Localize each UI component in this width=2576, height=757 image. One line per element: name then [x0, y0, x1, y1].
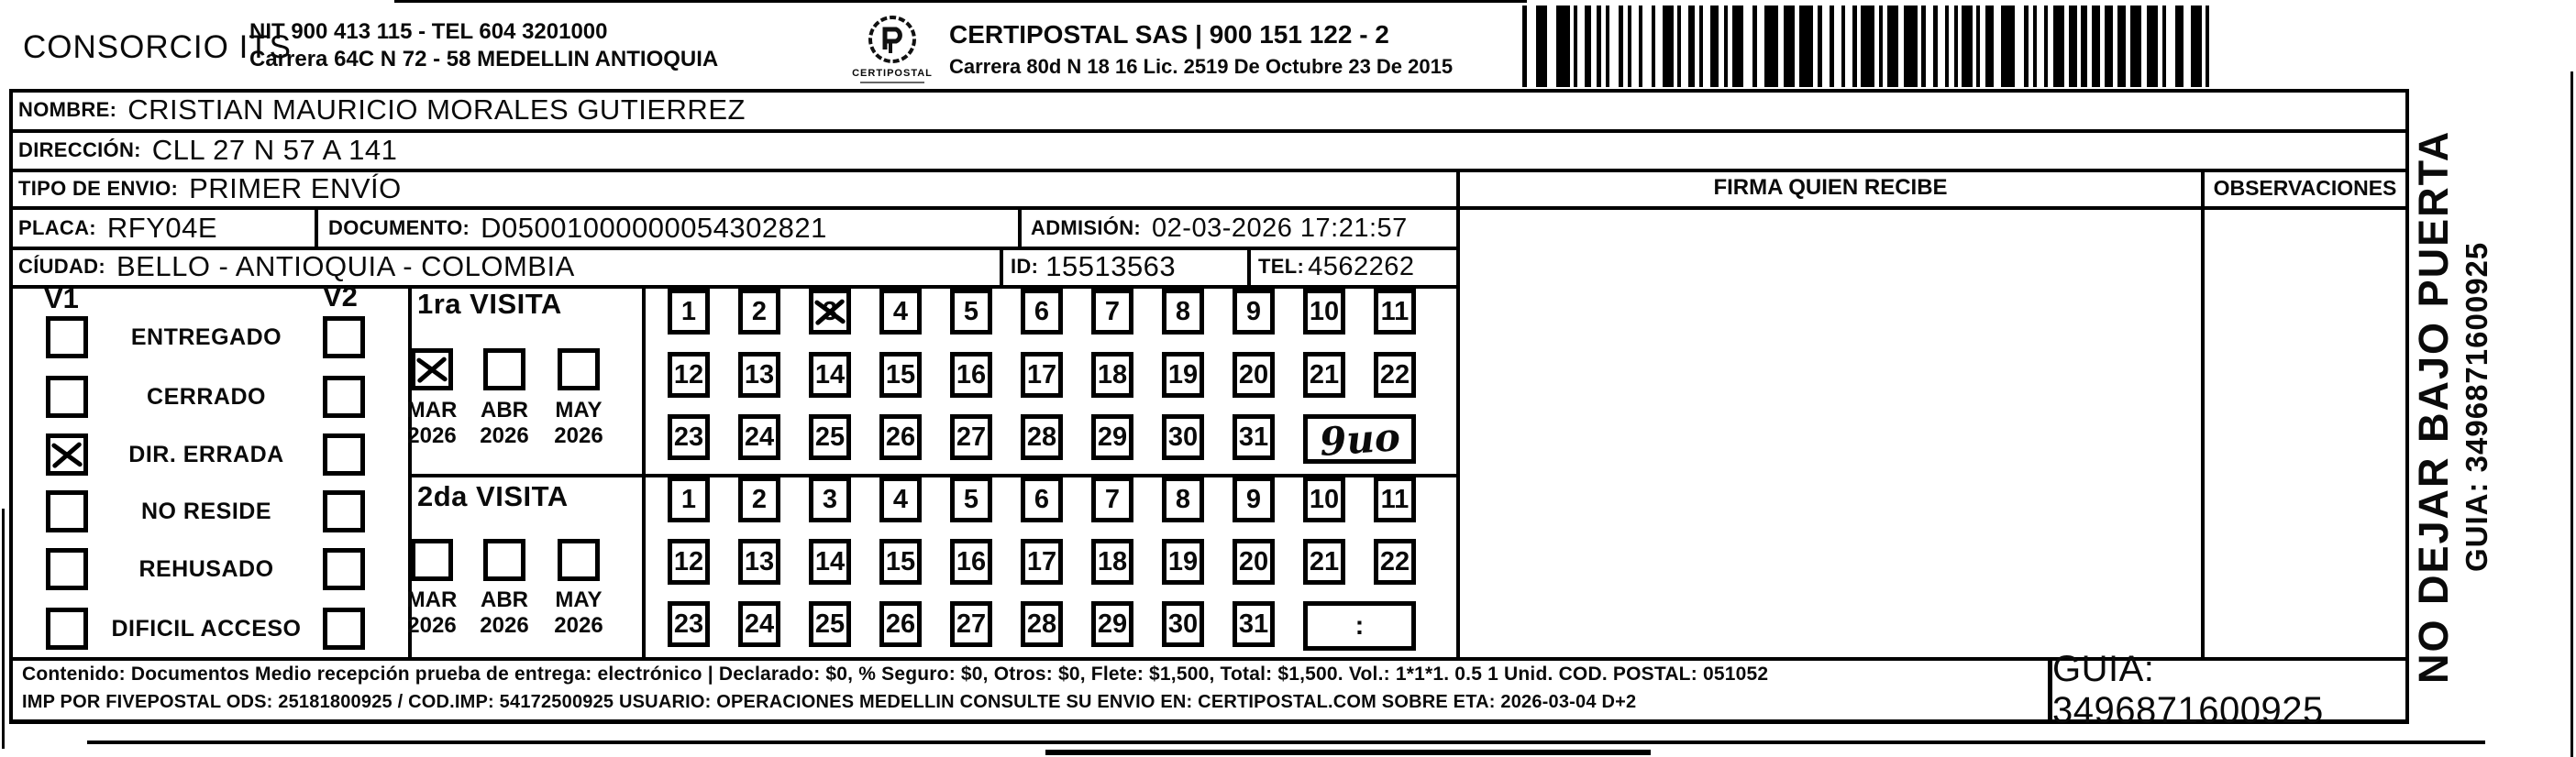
nombre-row: NOMBRE: CRISTIAN MAURICIO MORALES GUTIER…	[18, 92, 746, 128]
first-visit-time-box[interactable]: 9uo	[1303, 414, 1416, 464]
second-visit-day-28[interactable]: 28	[1021, 601, 1063, 647]
documento-label: DOCUMENTO:	[328, 216, 470, 240]
first-visit-day-19[interactable]: 19	[1162, 352, 1204, 398]
second-visit-month-label-mar: MAR	[393, 587, 470, 613]
first-visit-month-label-mar: MAR	[393, 398, 470, 423]
tel-field: TEL: 4562262	[1258, 248, 1414, 285]
scan-artifact-right-line	[2570, 71, 2573, 757]
logo-tagline-rule	[860, 82, 924, 83]
id-field: ID: 15513563	[1011, 248, 1176, 285]
firma-header: FIRMA QUIEN RECIBE	[1460, 172, 2201, 203]
id-value: 15513563	[1045, 250, 1176, 283]
second-visit-month-checkbox-abr[interactable]	[483, 539, 525, 581]
ciudad-id-divider	[1000, 247, 1003, 289]
guia-vertical: GUIA: 3496871600925	[2458, 87, 2496, 726]
status-label-entregado: ENTREGADO	[92, 316, 321, 359]
second-visit-day-31[interactable]: 31	[1233, 601, 1275, 647]
tel-value: 4562262	[1308, 252, 1414, 282]
first-visit-month-year-abr: 2026	[466, 423, 543, 449]
admision-value: 02-03-2026 17:21:57	[1152, 214, 1408, 244]
first-visit-day-24[interactable]: 24	[738, 414, 780, 460]
admision-label: ADMISIÓN:	[1031, 216, 1141, 240]
scan-artifact-bottom-thick	[1045, 750, 1651, 755]
logo-wordmark: CERTIPOSTAL	[851, 68, 934, 79]
barcode	[1522, 5, 2228, 87]
courier-address: Carrera 80d N 18 16 Lic. 2519 De Octubre…	[949, 55, 1453, 79]
v2-column-label: V2	[323, 280, 358, 313]
second-visit-day-6[interactable]: 6	[1021, 477, 1063, 522]
v1-checkbox-cerrado[interactable]	[46, 376, 88, 418]
first-visit-day-28[interactable]: 28	[1021, 414, 1063, 460]
second-visit-day-16[interactable]: 16	[950, 539, 992, 585]
second-visit-day-7[interactable]: 7	[1091, 477, 1133, 522]
direccion-value: CLL 27 N 57 A 141	[152, 134, 398, 167]
sender-nit-tel: NIT 900 413 115 - TEL 604 3201000	[249, 18, 718, 46]
v2-checkbox-dificil-acceso[interactable]	[323, 608, 365, 650]
observaciones-area[interactable]	[2205, 210, 2405, 657]
tipo-envio-label: TIPO DE ENVIO:	[18, 177, 178, 201]
first-visit-month-year-mar: 2026	[393, 423, 470, 449]
second-visit-day-8[interactable]: 8	[1162, 477, 1204, 522]
certipostal-logo: CERTIPOSTAL	[851, 13, 934, 83]
placa-value: RFY04E	[107, 212, 217, 245]
placa-field: PLACA: RFY04E	[18, 210, 217, 247]
footer-imp-line: IMP POR FIVEPOSTAL ODS: 25181800925 / CO…	[22, 692, 1636, 713]
second-visit-day-23[interactable]: 23	[668, 601, 710, 647]
v2-checkbox-no-reside[interactable]	[323, 490, 365, 532]
tel-label: TEL:	[1258, 255, 1304, 279]
scan-artifact-left-line	[2, 509, 5, 749]
second-visit-day-9[interactable]: 9	[1233, 477, 1275, 522]
second-visit-day-22[interactable]: 22	[1374, 539, 1416, 585]
first-visit-day-23[interactable]: 23	[668, 414, 710, 460]
first-visit-day-2[interactable]: 2	[738, 289, 780, 335]
first-visit-handwritten-time: 9uo	[1318, 413, 1401, 464]
second-visit-month-checkbox-mar[interactable]	[411, 539, 453, 581]
ciudad-label: CÍUDAD:	[18, 255, 105, 279]
nombre-label: NOMBRE:	[18, 98, 116, 122]
status-label-dificil-acceso: DIFICIL ACCESO	[92, 608, 321, 651]
v1-checkbox-rehusado[interactable]	[46, 548, 88, 590]
second-visit-day-10[interactable]: 10	[1303, 477, 1345, 522]
second-visit-day-15[interactable]: 15	[879, 539, 922, 585]
direccion-label: DIRECCIÓN:	[18, 138, 141, 162]
second-visit-month-year-abr: 2026	[466, 613, 543, 639]
first-visit-title: 1ra VISITA	[417, 288, 562, 321]
first-visit-day-31[interactable]: 31	[1233, 414, 1275, 460]
first-visit-day-20[interactable]: 20	[1233, 352, 1275, 398]
scanned-delivery-form: CONSORCIO ITS NIT 900 413 115 - TEL 604 …	[0, 0, 2576, 757]
first-visit-month-checkbox-abr[interactable]	[483, 348, 525, 390]
courier-info: CERTIPOSTAL SAS | 900 151 122 - 2 Carrer…	[949, 20, 1453, 79]
first-visit-day-8[interactable]: 8	[1162, 289, 1204, 335]
direccion-row: DIRECCIÓN: CLL 27 N 57 A 141	[18, 132, 397, 169]
no-dejar-warning: NO DEJAR BAJO PUERTA	[2408, 87, 2460, 726]
guia-box: GUIA: 3496871600925	[2052, 659, 2405, 721]
second-visit-day-13[interactable]: 13	[738, 539, 780, 585]
first-visit-day-14[interactable]: 14	[809, 352, 851, 398]
visit-divider	[408, 474, 1460, 477]
second-visit-month-label-abr: ABR	[466, 587, 543, 613]
sender-address: Carrera 64C N 72 - 58 MEDELLIN ANTIOQUIA	[249, 46, 718, 73]
status-label-cerrado: CERRADO	[92, 376, 321, 419]
documento-value: D05001000000054302821	[481, 212, 827, 245]
first-visit-day-22[interactable]: 22	[1374, 352, 1416, 398]
first-visit-day-21[interactable]: 21	[1303, 352, 1345, 398]
v2-checkbox-cerrado[interactable]	[323, 376, 365, 418]
nombre-value: CRISTIAN MAURICIO MORALES GUTIERREZ	[127, 93, 746, 126]
firma-area[interactable]	[1460, 210, 2201, 657]
second-visit-time-box[interactable]: :	[1303, 601, 1416, 651]
second-visit-title: 2da VISITA	[417, 480, 569, 513]
doc-admision-divider	[1018, 206, 1022, 250]
id-label: ID:	[1011, 255, 1038, 279]
second-visit-day-12[interactable]: 12	[668, 539, 710, 585]
v1-checkbox-dir-errada[interactable]	[46, 433, 88, 476]
v2-checkbox-rehusado[interactable]	[323, 548, 365, 590]
second-visit-month-year-mar: 2026	[393, 613, 470, 639]
first-visit-month-checkbox-mar[interactable]	[411, 348, 453, 390]
second-visit-month-checkbox-may[interactable]	[558, 539, 600, 581]
second-visit-day-11[interactable]: 11	[1374, 477, 1416, 522]
second-visit-day-20[interactable]: 20	[1233, 539, 1275, 585]
placa-label: PLACA:	[18, 216, 96, 240]
second-visit-day-27[interactable]: 27	[950, 601, 992, 647]
first-visit-day-9[interactable]: 9	[1233, 289, 1275, 335]
status-label-dir-errada: DIR. ERRADA	[92, 433, 321, 477]
first-visit-day-6[interactable]: 6	[1021, 289, 1063, 335]
second-visit-day-3[interactable]: 3	[809, 477, 851, 522]
second-visit-day-21[interactable]: 21	[1303, 539, 1345, 585]
first-visit-day-10[interactable]: 10	[1303, 289, 1345, 335]
first-visit-month-label-abr: ABR	[466, 398, 543, 423]
second-visit-day-19[interactable]: 19	[1162, 539, 1204, 585]
second-visit-day-5[interactable]: 5	[950, 477, 992, 522]
tipo-envio-row: TIPO DE ENVIO: PRIMER ENVÍO	[18, 171, 402, 206]
second-visit-day-4[interactable]: 4	[879, 477, 922, 522]
first-visit-day-26[interactable]: 26	[879, 414, 922, 460]
second-visit-day-25[interactable]: 25	[809, 601, 851, 647]
status-label-rehusado: REHUSADO	[92, 548, 321, 591]
first-visit-month-label-may: MAY	[540, 398, 617, 423]
first-visit-day-30[interactable]: 30	[1162, 414, 1204, 460]
ciudad-value: BELLO - ANTIOQUIA - COLOMBIA	[116, 250, 575, 283]
second-visit-day-17[interactable]: 17	[1021, 539, 1063, 585]
first-visit-day-5[interactable]: 5	[950, 289, 992, 335]
second-visit-day-29[interactable]: 29	[1091, 601, 1133, 647]
second-visit-day-18[interactable]: 18	[1091, 539, 1133, 585]
tipo-envio-value: PRIMER ENVÍO	[189, 172, 402, 205]
v2-checkbox-dir-errada[interactable]	[323, 433, 365, 476]
v1-checkbox-no-reside[interactable]	[46, 490, 88, 532]
admision-field: ADMISIÓN: 02-03-2026 17:21:57	[1031, 210, 1408, 247]
first-visit-day-25[interactable]: 25	[809, 414, 851, 460]
certipostal-logo-icon	[866, 13, 919, 66]
id-tel-divider	[1247, 247, 1251, 289]
second-visit-day-1[interactable]: 1	[668, 477, 710, 522]
v2-checkbox-entregado[interactable]	[323, 316, 365, 358]
scan-artifact-top-line	[394, 0, 1527, 3]
first-visit-month-checkbox-may[interactable]	[558, 348, 600, 390]
first-visit-day-4[interactable]: 4	[879, 289, 922, 335]
visit-grid-divider	[642, 285, 646, 661]
first-visit-day-16[interactable]: 16	[950, 352, 992, 398]
first-visit-day-13[interactable]: 13	[738, 352, 780, 398]
footer-contenido-line: Contenido: Documentos Medio recepción pr…	[22, 664, 1768, 686]
first-visit-day-29[interactable]: 29	[1091, 414, 1133, 460]
second-visit-month-label-may: MAY	[540, 587, 617, 613]
documento-field: DOCUMENTO: D05001000000054302821	[328, 210, 827, 247]
first-visit-day-11[interactable]: 11	[1374, 289, 1416, 335]
first-visit-day-12[interactable]: 12	[668, 352, 710, 398]
observaciones-header: OBSERVACIONES	[2205, 172, 2405, 203]
second-visit-day-2[interactable]: 2	[738, 477, 780, 522]
first-visit-day-17[interactable]: 17	[1021, 352, 1063, 398]
first-visit-day-7[interactable]: 7	[1091, 289, 1133, 335]
second-visit-month-year-may: 2026	[540, 613, 617, 639]
first-visit-day-3[interactable]: 3	[809, 289, 851, 335]
first-visit-day-15[interactable]: 15	[879, 352, 922, 398]
placa-doc-divider	[315, 206, 318, 250]
v1-checkbox-dificil-acceso[interactable]	[46, 608, 88, 650]
form-border-left	[9, 89, 13, 724]
v1-column-label: V1	[44, 282, 79, 315]
first-visit-day-18[interactable]: 18	[1091, 352, 1133, 398]
first-visit-day-1[interactable]: 1	[668, 289, 710, 335]
second-visit-day-30[interactable]: 30	[1162, 601, 1204, 647]
v1-checkbox-entregado[interactable]	[46, 316, 88, 358]
second-visit-day-24[interactable]: 24	[738, 601, 780, 647]
ciudad-field: CÍUDAD: BELLO - ANTIOQUIA - COLOMBIA	[18, 248, 575, 285]
first-visit-month-year-may: 2026	[540, 423, 617, 449]
first-visit-day-27[interactable]: 27	[950, 414, 992, 460]
sender-info: NIT 900 413 115 - TEL 604 3201000 Carrer…	[249, 18, 718, 73]
second-visit-day-14[interactable]: 14	[809, 539, 851, 585]
second-visit-day-26[interactable]: 26	[879, 601, 922, 647]
status-label-no-reside: NO RESIDE	[92, 490, 321, 533]
courier-name: CERTIPOSTAL SAS | 900 151 122 - 2	[949, 20, 1453, 49]
scan-artifact-bottom-line	[87, 741, 2485, 744]
